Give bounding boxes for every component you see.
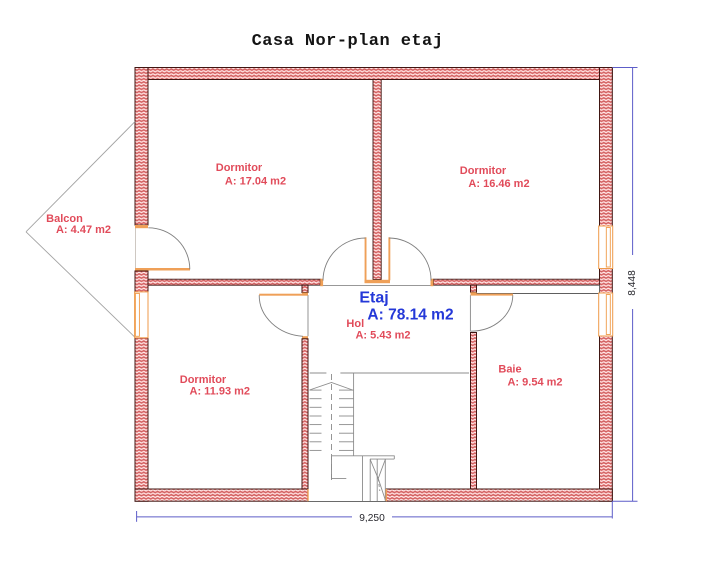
svg-text:Balcon: Balcon — [46, 213, 83, 225]
svg-text:A: 16.46 m2: A: 16.46 m2 — [468, 178, 529, 190]
svg-text:A: 5.43 m2: A: 5.43 m2 — [355, 330, 410, 342]
svg-text:Dormitor: Dormitor — [216, 162, 263, 174]
svg-text:8,448: 8,448 — [627, 270, 638, 296]
svg-text:A: 78.14 m2: A: 78.14 m2 — [367, 307, 453, 324]
svg-text:A: 17.04 m2: A: 17.04 m2 — [225, 175, 286, 187]
svg-text:Baie: Baie — [498, 364, 521, 376]
svg-text:A: 9.54 m2: A: 9.54 m2 — [507, 376, 562, 388]
svg-text:Etaj: Etaj — [359, 290, 388, 307]
svg-text:9,250: 9,250 — [359, 513, 385, 524]
svg-text:Dormitor: Dormitor — [460, 165, 507, 177]
svg-text:Casa Nor-plan etaj: Casa Nor-plan etaj — [252, 32, 444, 51]
svg-text:A: 4.47 m2: A: 4.47 m2 — [56, 224, 111, 236]
svg-text:A: 11.93 m2: A: 11.93 m2 — [190, 385, 251, 397]
svg-text:Dormitor: Dormitor — [180, 374, 227, 386]
svg-text:Hol: Hol — [346, 318, 364, 330]
